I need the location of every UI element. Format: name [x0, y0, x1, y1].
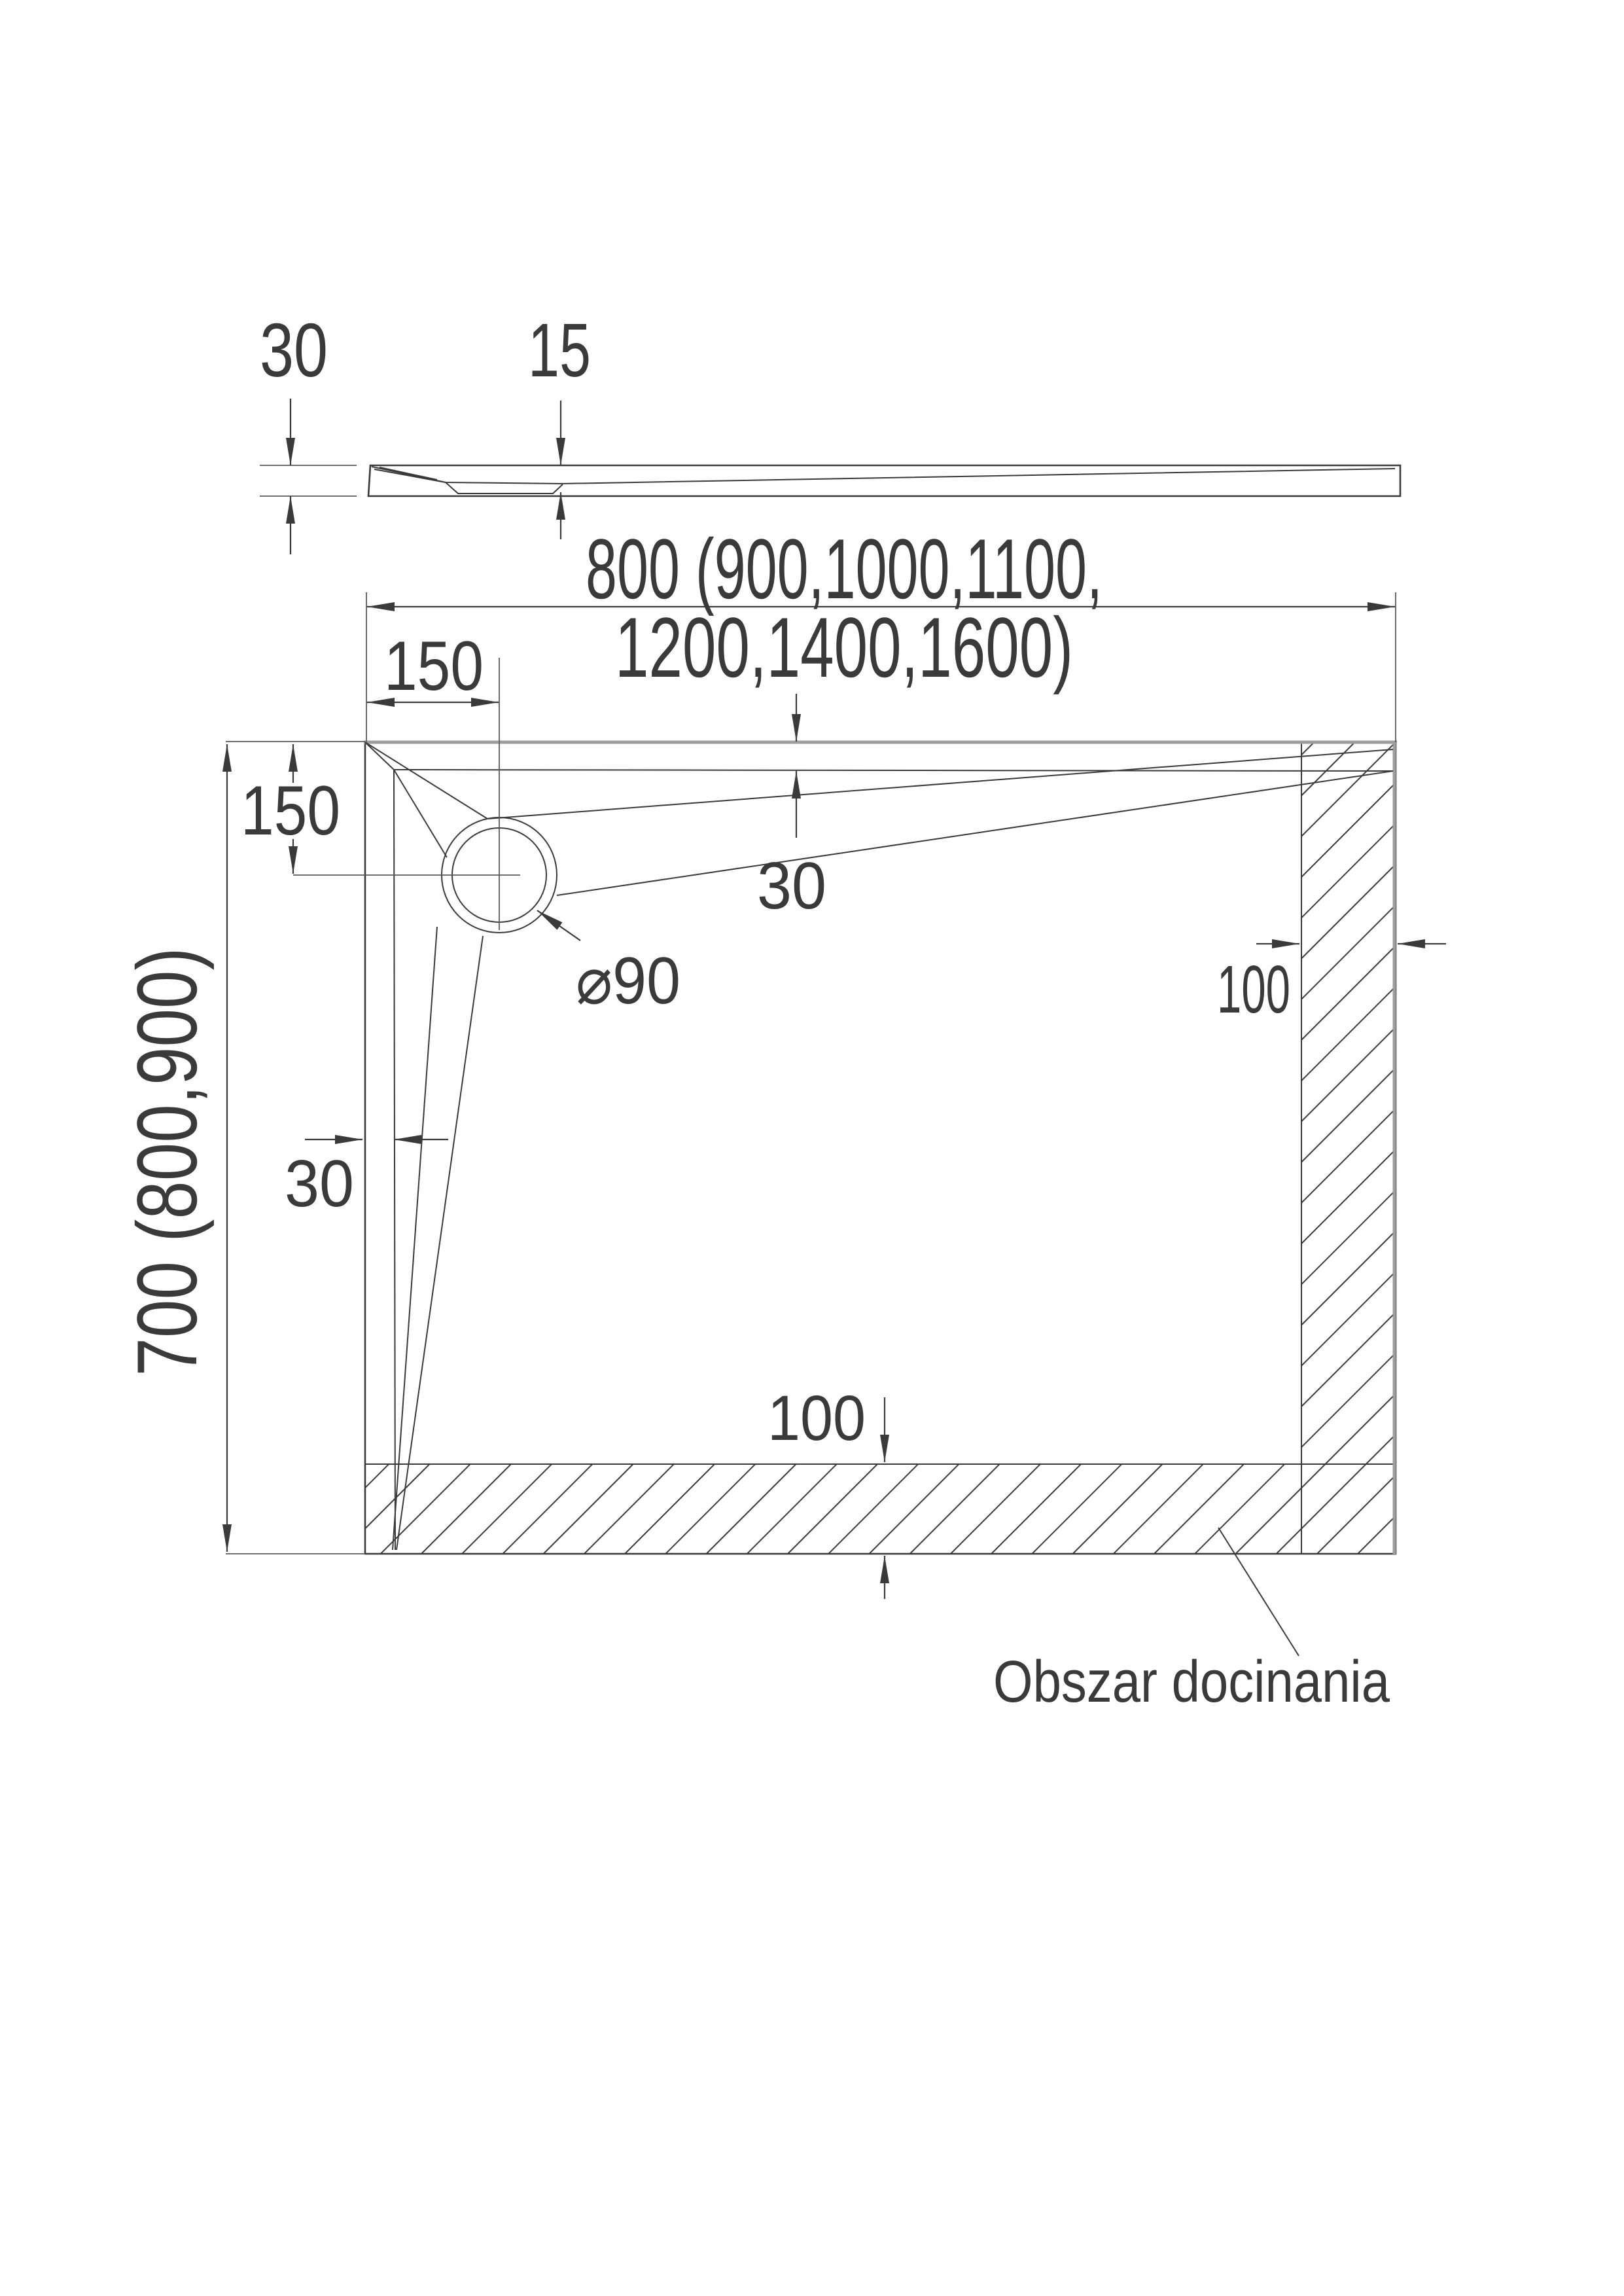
plan-view: 800 (900,1000,1100, 1200,1400,1600) 150 …: [119, 521, 1446, 1715]
trim-area-label: Obszar docinania: [993, 1649, 1390, 1715]
dim-depth-15-label: 15: [528, 308, 591, 393]
dim-drain-offset-y-150: 150: [241, 744, 340, 874]
dim-drain-offset-y-label: 150: [241, 771, 340, 850]
dim-edge-gap-top-label: 30: [757, 850, 826, 923]
trim-area-boundaries: [365, 742, 1393, 1554]
tray-outline: [365, 742, 1396, 1554]
dim-trim-bottom-label: 100: [768, 1382, 866, 1454]
trim-area-callout: Obszar docinania: [993, 1528, 1390, 1715]
dim-thickness-30: 30: [260, 308, 328, 554]
drawing-page: 30 15: [0, 0, 1624, 2296]
dim-drain-diameter-label: ⌀90: [576, 944, 680, 1018]
dim-width-800: 800 (900,1000,1100, 1200,1400,1600): [367, 521, 1395, 695]
dim-length-700-label: 700 (800,900): [119, 948, 215, 1376]
dim-depth-15: 15: [528, 308, 591, 539]
profile-extension-lines: [260, 465, 357, 496]
profile-outline: [368, 465, 1400, 496]
floor-fold-lines: [365, 742, 1393, 1550]
dim-length-700: 700 (800,900): [119, 744, 227, 1552]
dim-drain-diameter: ⌀90: [537, 910, 680, 1018]
dim-trim-right-label: 100: [1217, 952, 1290, 1027]
shower-tray-dimension-drawing: 30 15: [0, 0, 1624, 2296]
dim-edge-gap-top-30: 30: [757, 694, 826, 923]
side-profile-view: 30 15: [260, 308, 1400, 554]
dim-width-800-label-line2: 1200,1400,1600): [615, 600, 1073, 695]
dim-edge-gap-left-label: 30: [285, 1147, 354, 1221]
dim-edge-gap-left-30: 30: [285, 1139, 448, 1221]
dim-thickness-30-label: 30: [260, 308, 328, 393]
trim-area-hatch: [365, 742, 1393, 1554]
profile-floor-lines: [372, 467, 1395, 493]
dim-drain-offset-x-150: 150: [367, 626, 499, 705]
dim-drain-offset-x-label: 150: [384, 626, 484, 705]
